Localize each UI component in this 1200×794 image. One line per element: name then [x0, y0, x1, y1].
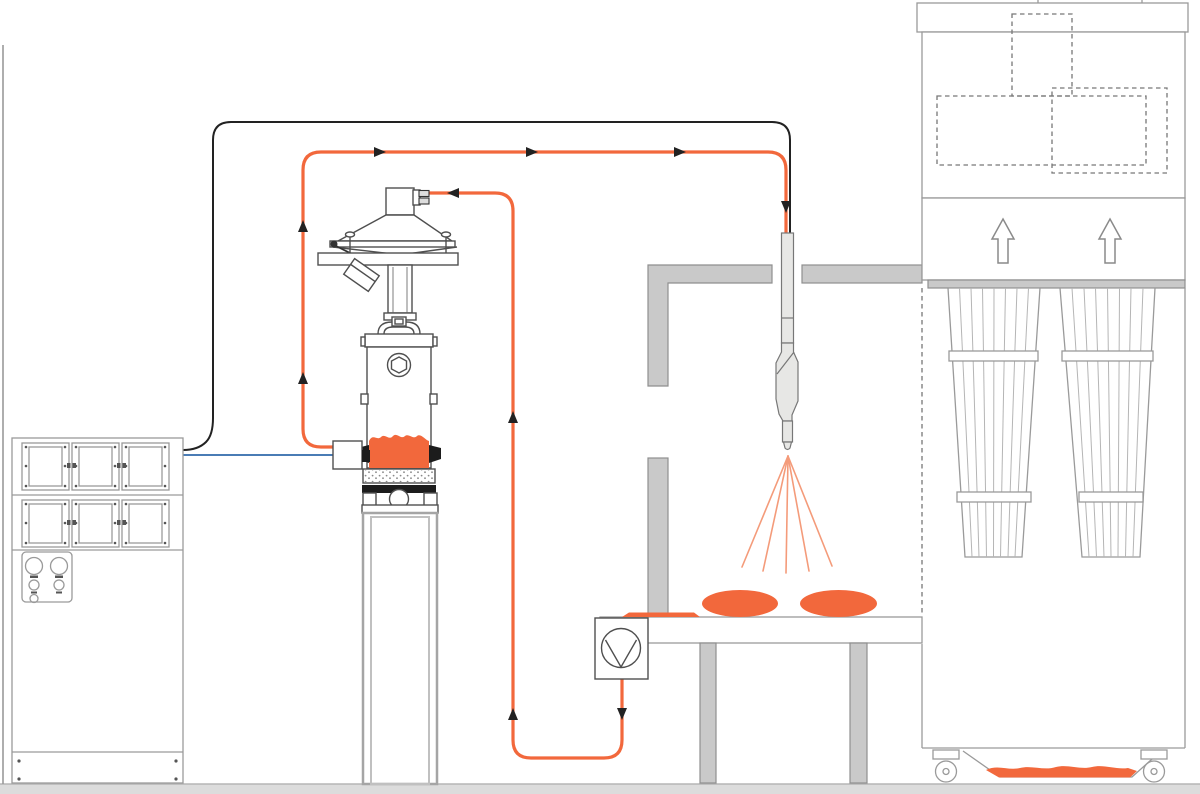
- hopper-clamp: [429, 445, 441, 463]
- vibrating-sieve: [318, 188, 458, 320]
- powder-injector: [333, 441, 370, 469]
- booth-ceiling-right: [802, 265, 922, 283]
- powder-in-hopper: [369, 435, 429, 468]
- recovery-pump: [595, 618, 648, 679]
- gun-nozzle: [783, 421, 793, 442]
- unit-top-cap: [917, 3, 1188, 32]
- hopper-hook: [430, 394, 437, 404]
- after-filter-unit: [917, 0, 1188, 782]
- floor: [0, 784, 1200, 794]
- powder-recovery-hose: [429, 193, 622, 758]
- control-cabinet: [12, 438, 183, 783]
- sieve-deck: [330, 241, 455, 247]
- workpiece-disc: [702, 590, 778, 617]
- hopper-base: [362, 490, 438, 514]
- gun-power-cable: [183, 122, 790, 450]
- booth-wall-left-upper: [648, 265, 772, 386]
- filter-mounting-plate: [928, 280, 1185, 288]
- caster-wheel: [1141, 750, 1167, 782]
- powder-coating-diagram: [0, 0, 1200, 794]
- sieve-cone: [338, 215, 452, 241]
- table-leg: [850, 643, 867, 783]
- sieve-hose-connector: [413, 190, 429, 205]
- table-leg: [700, 643, 716, 783]
- powder-hopper: [357, 317, 441, 513]
- powder-collection-tray: [963, 751, 1161, 778]
- sieve-inlet-cylinder: [386, 188, 414, 215]
- spray-cloud: [742, 456, 832, 573]
- filter-cartridge: [948, 288, 1040, 557]
- hopper-stand: [363, 513, 437, 784]
- caster-wheel: [933, 750, 959, 782]
- fluidizing-plate: [363, 469, 435, 483]
- hopper-hook: [361, 394, 368, 404]
- powder-layer-on-table: [622, 613, 700, 618]
- filter-cartridge: [1060, 288, 1155, 557]
- exhaust-section: [922, 198, 1185, 280]
- booth-wall-left-lower: [648, 458, 668, 614]
- sieve-mount-plate: [318, 253, 458, 265]
- gun-nozzle-tip: [784, 442, 792, 450]
- spray-gun: [776, 233, 798, 450]
- hopper-lid: [365, 334, 433, 347]
- workpiece-disc: [800, 590, 877, 617]
- sieve-column: [388, 265, 412, 313]
